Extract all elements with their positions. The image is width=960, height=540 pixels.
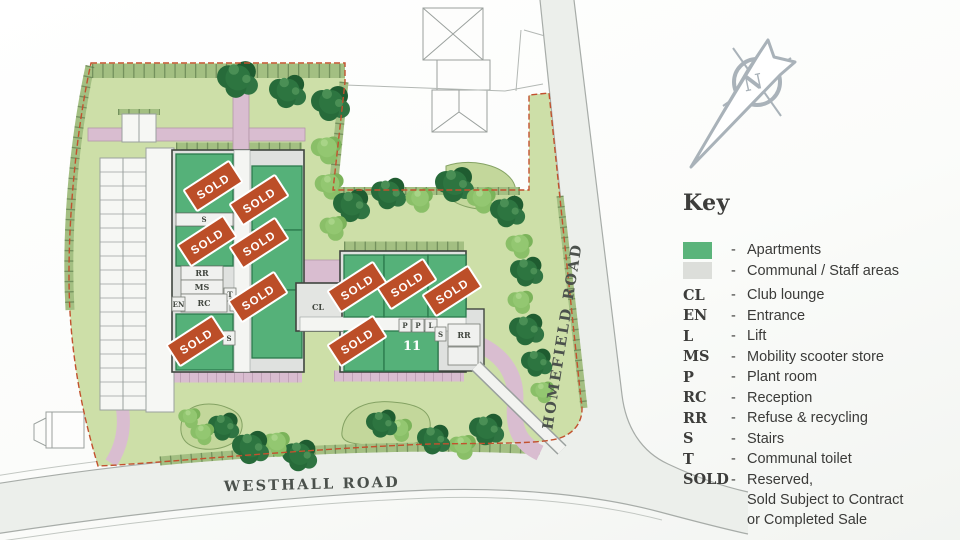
site-plan-page: { "key": { "title": "Key", "dash": "-", … [0, 0, 960, 540]
compass-north-icon: N [691, 40, 795, 167]
key-item-communal: - Communal / Staff areas [683, 261, 949, 282]
club-lounge-label: CL [312, 302, 324, 312]
key-item-sold-line3: or Completed Sale [683, 510, 949, 530]
apartments-swatch [683, 242, 712, 259]
key-item-sold-line2: Sold Subject to Contract [683, 490, 949, 510]
refuse-label: RR [195, 268, 209, 278]
key-item-en: EN-Entrance [683, 306, 949, 327]
scooter-store-label: MS [195, 282, 210, 292]
key-item-l: L-Lift [683, 326, 949, 347]
key-item-apartments: - Apartments [683, 240, 949, 261]
key-item-rr: RR-Refuse & recycling [683, 408, 949, 429]
parking-area [100, 114, 174, 412]
key-item-ms: MS-Mobility scooter store [683, 347, 949, 368]
refuse-label: RR [457, 330, 471, 340]
lift-label: L [429, 321, 434, 330]
entrance-label: EN [173, 300, 185, 309]
plant-room-label: P [402, 321, 408, 330]
key-item-sold: SOLD-Reserved, [683, 470, 949, 490]
stairs-label: S [226, 334, 231, 343]
reception-label: RC [197, 298, 210, 308]
unit-11-number: 11 [403, 339, 421, 354]
stairs-label: S [438, 330, 443, 339]
key-item-p: P-Plant room [683, 367, 949, 388]
key-item-rc: RC-Reception [683, 388, 949, 409]
key-item-cl: CL-Club lounge [683, 285, 949, 306]
key-legend: Key - Apartments - Communal / Staff area… [683, 190, 949, 530]
plant-room-label: P [415, 321, 421, 330]
neighbour-building-outline-sw [34, 412, 84, 448]
key-item-s: S-Stairs [683, 429, 949, 450]
key-title: Key [683, 190, 949, 216]
stairs-label: S [201, 215, 206, 224]
communal-swatch [683, 262, 712, 279]
key-item-t: T-Communal toilet [683, 449, 949, 470]
neighbour-building-outline [345, 8, 545, 132]
